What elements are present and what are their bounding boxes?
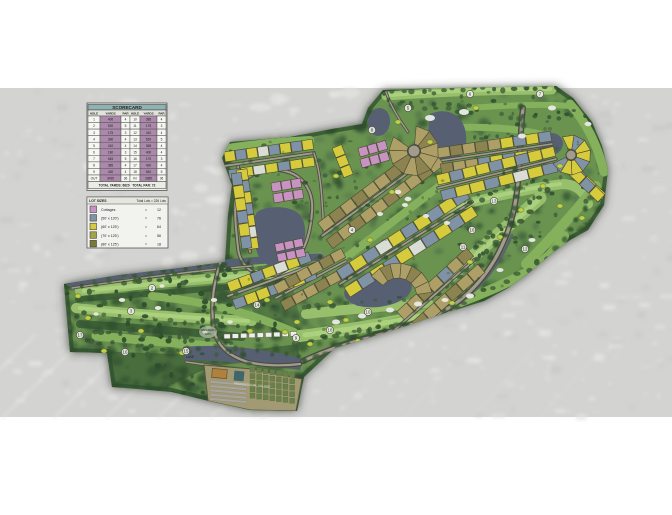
svg-text:410: 410 xyxy=(146,131,152,135)
svg-text:3: 3 xyxy=(125,151,127,155)
svg-text:PAR: PAR xyxy=(158,111,165,115)
svg-text:PAR: PAR xyxy=(122,111,129,115)
svg-text:3: 3 xyxy=(93,131,95,135)
svg-text:400: 400 xyxy=(108,118,114,122)
svg-text:Cottages: Cottages xyxy=(101,208,116,212)
svg-text:175: 175 xyxy=(146,124,152,128)
svg-text:76: 76 xyxy=(157,217,161,221)
svg-text:4: 4 xyxy=(161,131,163,135)
svg-text:5: 5 xyxy=(93,144,95,148)
svg-text:16: 16 xyxy=(470,228,475,233)
svg-text:18: 18 xyxy=(328,328,333,333)
svg-text:17: 17 xyxy=(133,164,137,168)
svg-text:YARDS: YARDS xyxy=(143,111,153,115)
svg-text:430: 430 xyxy=(108,170,114,174)
svg-text:17: 17 xyxy=(78,333,83,338)
svg-text:12: 12 xyxy=(157,208,161,212)
svg-text:7: 7 xyxy=(93,157,95,161)
svg-text:10: 10 xyxy=(133,118,137,122)
svg-text:16: 16 xyxy=(133,157,137,161)
svg-text:(60' x 125'): (60' x 125') xyxy=(101,225,119,229)
svg-text:540: 540 xyxy=(146,170,152,174)
svg-text:4: 4 xyxy=(161,144,163,148)
svg-text:64: 64 xyxy=(157,225,161,229)
svg-text:10: 10 xyxy=(366,310,371,315)
svg-text:15: 15 xyxy=(184,349,189,354)
svg-text:=: = xyxy=(145,208,147,212)
svg-text:3385: 3385 xyxy=(145,177,152,181)
svg-text:4: 4 xyxy=(93,137,95,141)
svg-text:(70' x 125'): (70' x 125') xyxy=(101,234,119,238)
svg-text:=: = xyxy=(145,225,147,229)
svg-text:=: = xyxy=(145,234,147,238)
svg-text:=: = xyxy=(145,242,147,246)
svg-text:LOT SIZES: LOT SIZES xyxy=(89,199,107,203)
svg-text:385: 385 xyxy=(146,118,152,122)
svg-text:56: 56 xyxy=(157,234,161,238)
svg-text:400: 400 xyxy=(146,151,152,155)
svg-text:520: 520 xyxy=(146,137,152,141)
svg-text:HOLE: HOLE xyxy=(90,111,98,115)
svg-text:5: 5 xyxy=(161,137,163,141)
svg-text:TOTAL YARDS: 6820 TOTAL PAR:: TOTAL YARDS: 6820 TOTAL PAR: 72 xyxy=(99,183,156,187)
svg-text:9: 9 xyxy=(93,170,95,174)
svg-text:170: 170 xyxy=(146,157,152,161)
svg-text:175: 175 xyxy=(108,131,114,135)
svg-text:420: 420 xyxy=(146,164,152,168)
svg-text:4: 4 xyxy=(161,164,163,168)
svg-text:(50' x 120'): (50' x 120') xyxy=(101,217,119,221)
svg-text:15: 15 xyxy=(133,151,137,155)
svg-text:13: 13 xyxy=(492,199,497,204)
svg-text:4: 4 xyxy=(125,144,127,148)
svg-text:Total Lots = 226 Lots: Total Lots = 226 Lots xyxy=(136,199,166,203)
svg-text:3: 3 xyxy=(161,157,163,161)
svg-text:180: 180 xyxy=(108,151,114,155)
svg-text:12: 12 xyxy=(133,131,137,135)
svg-text:6: 6 xyxy=(93,151,95,155)
svg-text:5: 5 xyxy=(125,124,127,128)
svg-text:365: 365 xyxy=(146,144,152,148)
svg-text:13: 13 xyxy=(133,137,137,141)
svg-text:410: 410 xyxy=(108,144,114,148)
svg-text:36: 36 xyxy=(160,177,164,181)
svg-text:5: 5 xyxy=(161,170,163,174)
svg-text:3: 3 xyxy=(125,131,127,135)
svg-text:5: 5 xyxy=(125,157,127,161)
svg-text:36: 36 xyxy=(124,177,128,181)
svg-text:8: 8 xyxy=(93,164,95,168)
svg-text:2: 2 xyxy=(93,124,95,128)
svg-text:520: 520 xyxy=(108,124,114,128)
svg-text:YARDS: YARDS xyxy=(105,111,115,115)
svg-text:(80' x 125'): (80' x 125') xyxy=(101,242,119,246)
svg-text:385: 385 xyxy=(108,164,114,168)
svg-text:4: 4 xyxy=(125,118,127,122)
svg-text:11: 11 xyxy=(461,245,466,250)
svg-text:3: 3 xyxy=(161,124,163,128)
svg-text:4: 4 xyxy=(161,118,163,122)
svg-text:OUT: OUT xyxy=(91,177,98,181)
svg-text:LAKE: LAKE xyxy=(186,355,194,359)
svg-text:11: 11 xyxy=(133,124,137,128)
svg-text:545: 545 xyxy=(108,157,114,161)
svg-text:HOLE: HOLE xyxy=(131,111,139,115)
svg-text:16: 16 xyxy=(123,350,128,355)
svg-text:=: = xyxy=(145,217,147,221)
svg-text:SCORECARD: SCORECARD xyxy=(112,105,142,110)
svg-text:4: 4 xyxy=(125,137,127,141)
svg-text:390: 390 xyxy=(108,137,114,141)
svg-text:18: 18 xyxy=(133,170,137,174)
svg-text:4: 4 xyxy=(125,170,127,174)
svg-text:4: 4 xyxy=(125,164,127,168)
svg-text:WAY: WAY xyxy=(205,332,212,336)
svg-text:1: 1 xyxy=(93,118,95,122)
svg-text:12: 12 xyxy=(523,247,528,252)
svg-text:14: 14 xyxy=(255,303,260,308)
svg-text:14: 14 xyxy=(133,144,137,148)
svg-text:3435: 3435 xyxy=(107,177,114,181)
svg-text:4: 4 xyxy=(161,151,163,155)
svg-text:18: 18 xyxy=(157,242,161,246)
